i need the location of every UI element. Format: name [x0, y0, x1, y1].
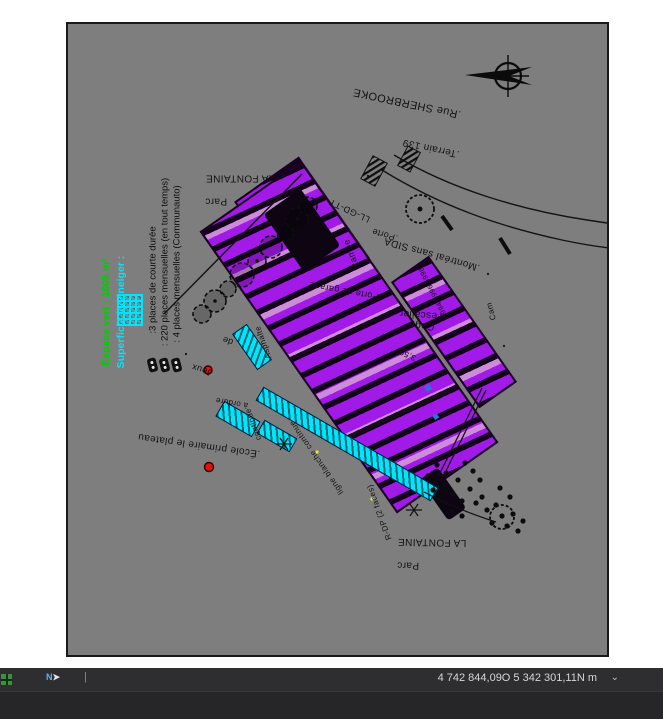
map-label-cam: Cam	[485, 301, 498, 321]
crosswalk-hatch-1	[361, 156, 387, 186]
parking-meter-icon-3	[170, 357, 182, 373]
legend-item-courte-duree: :3 places de courte durée	[148, 226, 159, 333]
bottom-panel	[0, 692, 663, 719]
map-label-parc-bottom: Parc	[397, 559, 419, 570]
legend-item-communauto: : 4 places mensuelles (Communauto)	[172, 185, 183, 342]
statusbar-separator: |	[84, 671, 87, 683]
map-label-porte: .Porte	[371, 226, 399, 243]
tree-dot-top-right	[418, 207, 423, 212]
legend-item-mensuelles: : 220 places mensuelles (en tout temps)	[160, 178, 171, 346]
curb-bar-2	[500, 238, 510, 254]
curb-bar-1	[442, 216, 452, 230]
map-label-jeux: Jeux	[191, 361, 214, 377]
tree-icon-top-right	[406, 195, 434, 223]
status-bar: N➤ | 4 742 844,09O 5 342 301,11N m ⌄	[0, 668, 663, 692]
map-label-la-fontaine-bottom: LA FONTAINE	[398, 536, 467, 548]
map-label-ecole-primaire: .École primaire le plateau	[137, 431, 261, 459]
tree-icon-bottom-right	[490, 505, 514, 529]
parking-meter-icon-1	[146, 357, 158, 373]
legend-espace-vert: Espace vert : 1605 m²	[100, 258, 112, 365]
road-curve-1	[382, 170, 607, 252]
chevron-down-icon[interactable]: ⌄	[611, 672, 619, 683]
drawing-viewport[interactable]: LA FONTAINE Parc .Rue SHERBROOKE .Terrai…	[66, 22, 609, 657]
map-label-la-fontaine-top: LA FONTAINE	[206, 173, 275, 184]
application-window: LA FONTAINE Parc .Rue SHERBROOKE .Terrai…	[0, 0, 663, 719]
point-marker-ecole	[205, 463, 214, 472]
north-arrow-icon	[465, 55, 532, 97]
parking-meter-icon-2	[158, 357, 170, 373]
survey-mark-2	[406, 504, 422, 516]
ucs-crosshair-icon[interactable]	[1, 674, 12, 685]
coordinate-display[interactable]: 4 742 844,09O 5 342 301,11N m	[438, 672, 597, 684]
map-label-parc-top: Parc	[205, 196, 227, 207]
map-label-rue-sherbrooke: .Rue SHERBROOKE	[352, 86, 462, 121]
legend-snow-swatch	[117, 294, 143, 326]
map-label-terrain-139: .Terrain 139	[402, 137, 461, 160]
nav-compass-icon[interactable]: N➤	[46, 672, 60, 683]
road-curve-2	[394, 155, 607, 232]
